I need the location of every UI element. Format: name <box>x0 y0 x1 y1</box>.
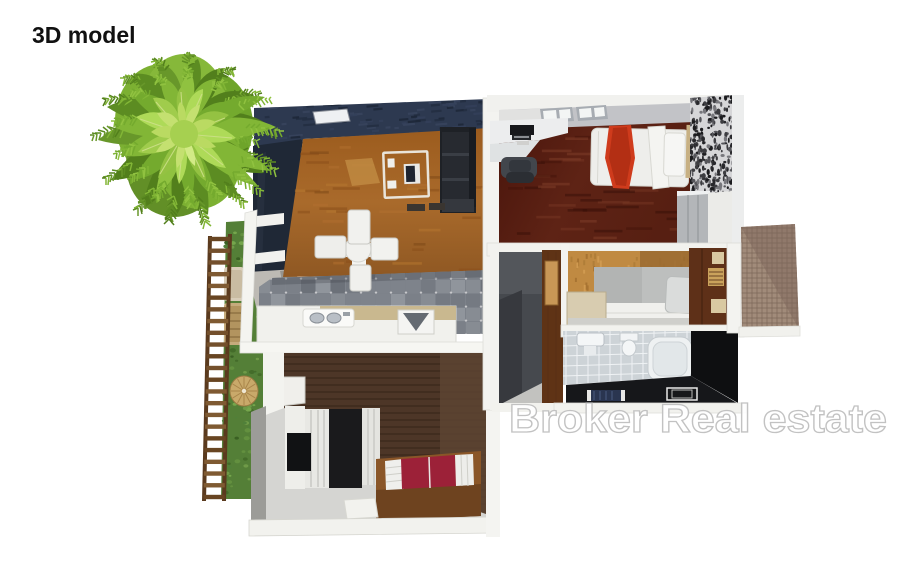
svg-text:Broker Real estate: Broker Real estate <box>509 397 887 441</box>
svg-text:3D model: 3D model <box>32 22 136 48</box>
